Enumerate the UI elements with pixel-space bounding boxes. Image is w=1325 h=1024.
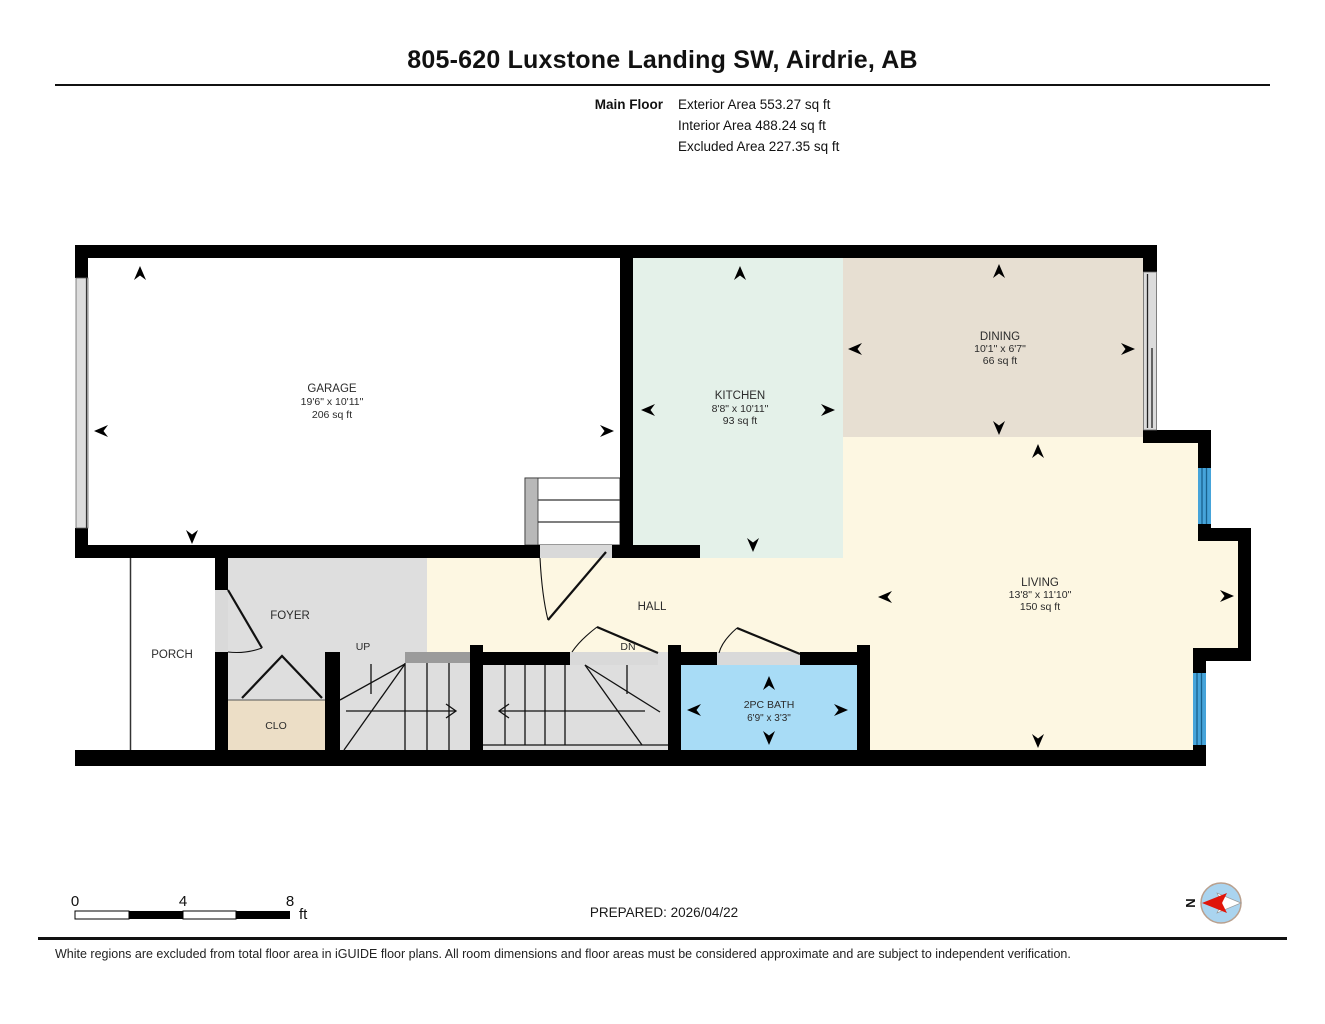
garage-dims: 19'6" x 10'11" bbox=[301, 396, 364, 408]
scale-tick-0: 0 bbox=[71, 893, 79, 910]
footer-divider bbox=[38, 937, 1287, 940]
dining-label: DINING bbox=[980, 331, 1020, 343]
stairs-up-label: UP bbox=[356, 641, 371, 653]
scale-tick-8: 8 bbox=[286, 893, 294, 910]
living-window-lower bbox=[1193, 673, 1206, 745]
floorplan-svg: GARAGE 19'6" x 10'11" 206 sq ft KITCHEN … bbox=[0, 0, 1325, 1024]
compass-icon: N bbox=[1183, 883, 1241, 923]
room-foyer-fill bbox=[228, 558, 427, 652]
stairs-down-fill bbox=[483, 652, 668, 750]
living-window-upper bbox=[1198, 468, 1211, 524]
porch-label: PORCH bbox=[151, 649, 193, 661]
garage-landing bbox=[525, 478, 620, 545]
dining-area: 66 sq ft bbox=[983, 355, 1018, 367]
garage-door bbox=[76, 278, 88, 528]
stairs-down-label: DN bbox=[620, 641, 635, 653]
footer-disclaimer: White regions are excluded from total fl… bbox=[55, 947, 1285, 961]
living-dims: 13'8" x 11'10" bbox=[1009, 589, 1072, 601]
foyer-vestibule-fill bbox=[228, 652, 325, 700]
closet-label: CLO bbox=[265, 720, 287, 732]
stairs-up-top-bar bbox=[405, 652, 470, 663]
scale-bar: 0 4 8 ft bbox=[71, 893, 308, 923]
scale-tick-4: 4 bbox=[179, 893, 187, 910]
garage-label: GARAGE bbox=[307, 383, 357, 395]
garage-area: 206 sq ft bbox=[312, 409, 352, 421]
foyer-label: FOYER bbox=[270, 610, 310, 622]
dining-dims: 10'1" x 6'7" bbox=[974, 343, 1026, 355]
prepared-date: PREPARED: 2026/04/22 bbox=[590, 905, 738, 920]
hall-label: HALL bbox=[638, 601, 667, 613]
living-label: LIVING bbox=[1021, 577, 1059, 589]
north-label: N bbox=[1183, 898, 1198, 907]
scale-unit: ft bbox=[299, 906, 308, 923]
bath-dims: 6'9" x 3'3" bbox=[747, 713, 791, 724]
living-area: 150 sq ft bbox=[1020, 601, 1060, 613]
sliding-door bbox=[1144, 272, 1157, 430]
bath-label: 2PC BATH bbox=[744, 699, 795, 711]
kitchen-label: KITCHEN bbox=[715, 390, 765, 402]
kitchen-area: 93 sq ft bbox=[723, 415, 758, 427]
kitchen-dims: 8'8" x 10'11" bbox=[712, 403, 769, 415]
floorplan-page: { "header": { "title": "805-620 Luxstone… bbox=[0, 0, 1325, 1024]
